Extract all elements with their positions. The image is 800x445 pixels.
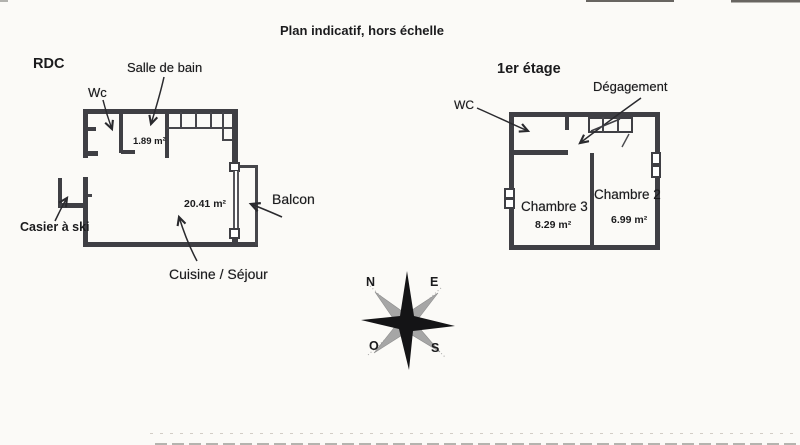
casier-a-ski-label: Casier à ski (20, 220, 90, 234)
chambre3-label: Chambre 3 (521, 199, 588, 214)
scanned-floor-plan-page: Plan indicatif, hors échelle RDC Salle d… (0, 0, 800, 445)
compass-east-label: E (430, 275, 438, 289)
floorplan-labels-layer: Plan indicatif, hors échelle RDC Salle d… (0, 0, 800, 445)
balcon-label: Balcon (272, 191, 315, 207)
etage-title: 1er étage (497, 61, 561, 77)
wc-etage-label: WC (454, 98, 474, 112)
salle-de-bain-label: Salle de bain (127, 60, 202, 75)
cuisine-sejour-area: 20.41 m² (184, 198, 226, 210)
chambre2-label: Chambre 2 (594, 187, 661, 202)
degagement-label: Dégagement (593, 79, 667, 94)
wc-rdc-label: Wc (88, 85, 107, 100)
cuisine-sejour-label: Cuisine / Séjour (169, 266, 268, 282)
compass-west-label: O (369, 339, 379, 353)
rdc-title: RDC (33, 56, 64, 72)
page-title: Plan indicatif, hors échelle (280, 23, 444, 38)
salle-de-bain-area: 1.89 m² (133, 136, 166, 147)
chambre3-area: 8.29 m² (535, 219, 571, 231)
compass-south-label: S (431, 341, 439, 355)
chambre2-area: 6.99 m² (611, 214, 647, 226)
compass-north-label: N (366, 275, 375, 289)
